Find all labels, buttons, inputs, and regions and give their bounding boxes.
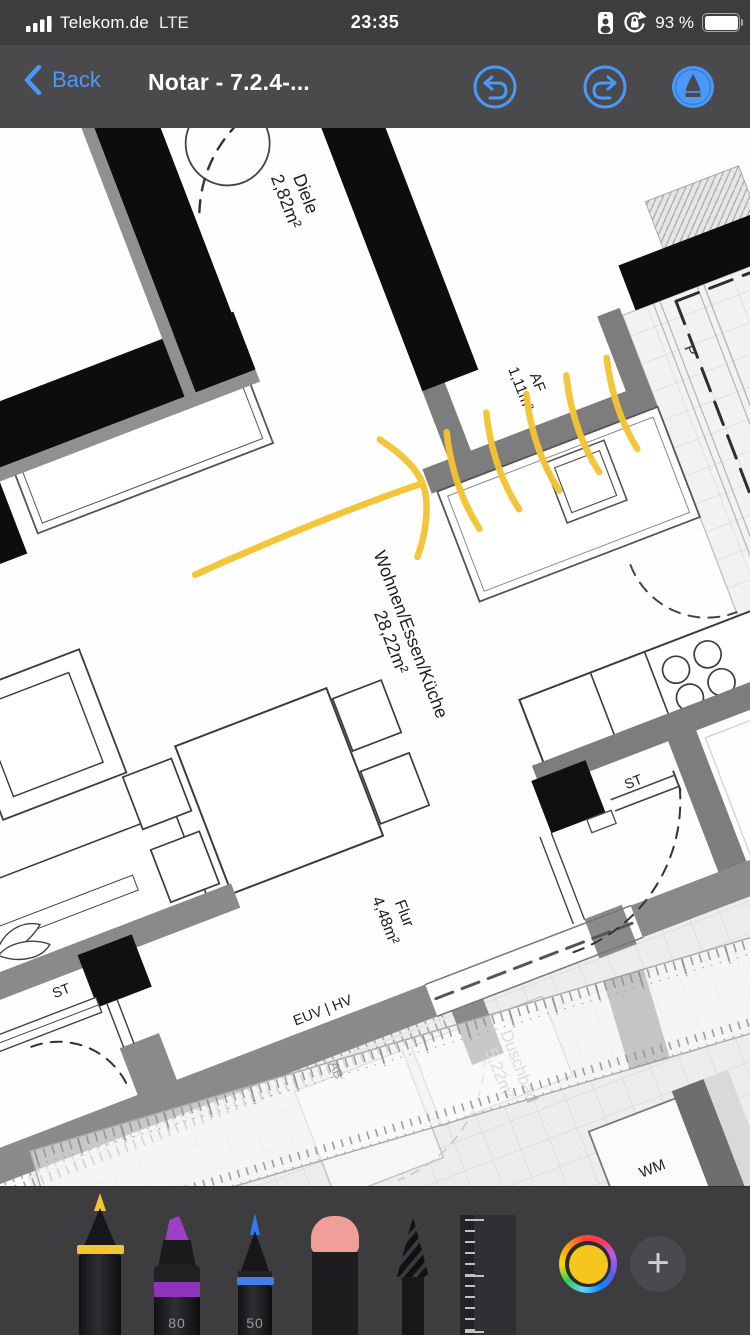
document-title: Notar - 7.2.4-...: [148, 69, 310, 96]
tool-pen[interactable]: [76, 1193, 124, 1335]
markup-toolbar: + 80 50: [0, 1186, 750, 1335]
pencil-opacity-label: 50: [225, 1315, 285, 1331]
person-device-icon: [597, 11, 614, 35]
chevron-left-icon: [24, 65, 42, 95]
color-picker-button[interactable]: [559, 1235, 617, 1293]
tool-lasso[interactable]: [396, 1217, 430, 1335]
lasso-cone: [397, 1217, 429, 1277]
selected-color-swatch: [569, 1245, 608, 1284]
tool-ruler[interactable]: [460, 1215, 516, 1335]
nav-bar: Back Notar - 7.2.4-...: [0, 45, 750, 128]
eraser-cap: [311, 1216, 359, 1254]
pencil-color-band: [237, 1277, 274, 1285]
pencil-cone: [241, 1231, 269, 1271]
lasso-body: [402, 1276, 424, 1335]
back-button[interactable]: Back: [24, 65, 101, 95]
add-annotation-button[interactable]: +: [630, 1236, 686, 1292]
back-button-label: Back: [52, 67, 101, 93]
highlighter-color-band: [154, 1282, 200, 1297]
plus-icon: +: [646, 1238, 669, 1288]
dining-table-symbol: [119, 669, 433, 915]
battery-percent-label: 93 %: [655, 13, 694, 33]
highlighter-tip: [164, 1216, 191, 1241]
pen-body: [79, 1254, 121, 1335]
color-picker-ring-gap: [565, 1241, 611, 1287]
status-bar: Telekom.de LTE 23:35 93 %: [0, 0, 750, 45]
undo-button[interactable]: [472, 64, 518, 110]
pen-color-band: [77, 1245, 124, 1254]
markup-canvas[interactable]: Diele 2,82m² AF 1,11m² Wohnen/Essen/Küch…: [0, 128, 750, 1186]
highlighter-opacity-label: 80: [147, 1315, 207, 1331]
redo-button[interactable]: [582, 64, 628, 110]
pen-cone: [84, 1208, 116, 1246]
highlighter-neck: [159, 1240, 196, 1265]
markup-pen-button[interactable]: [670, 64, 716, 110]
label-st-right: ST: [622, 771, 645, 793]
label-st-left: ST: [50, 980, 73, 1002]
highlighter-shoulder: [154, 1265, 200, 1282]
rotation-lock-icon: [622, 10, 647, 35]
battery-icon: [702, 13, 740, 32]
eraser-body: [312, 1252, 358, 1335]
tool-eraser[interactable]: [311, 1216, 359, 1335]
floor-plan-drawing: Diele 2,82m² AF 1,11m² Wohnen/Essen/Küch…: [0, 128, 750, 1186]
